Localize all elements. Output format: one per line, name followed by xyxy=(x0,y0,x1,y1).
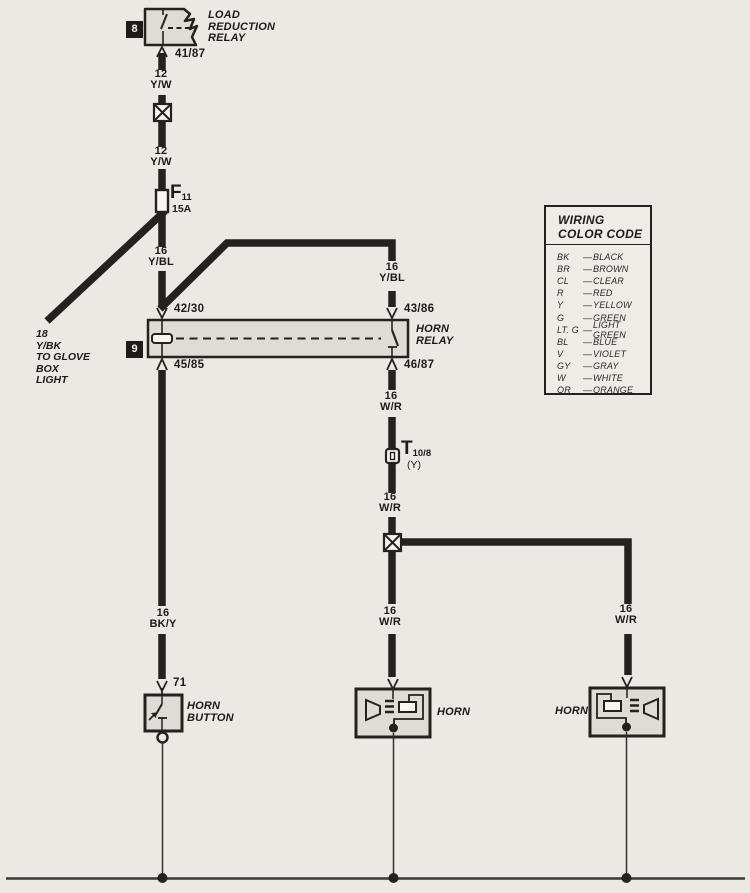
legend-row: OR—ORANGE xyxy=(557,384,649,396)
wire-label-16-bky: 16 BK/Y xyxy=(131,608,195,630)
component-tag-9: 9 xyxy=(126,341,143,358)
legend-row: GY—GRAY xyxy=(557,360,649,372)
terminal-46-87: 46/87 xyxy=(404,359,434,371)
terminal-71: 71 xyxy=(173,677,186,689)
legend-title: WIRING COLOR CODE xyxy=(558,214,642,241)
legend-row: LT. G—LIGHT GREEN xyxy=(557,324,649,336)
relay-86-branch-wire xyxy=(160,243,392,309)
horn-button-box xyxy=(145,695,182,743)
terminal-42-30: 42/30 xyxy=(174,303,204,315)
wire-label-16-ybl-right: 16 Y/BL xyxy=(360,262,424,284)
wire-label-16-wr-relay: 16 W/R xyxy=(359,391,423,413)
legend-row: BK—BLACK xyxy=(557,251,649,263)
legend-row: BR—BROWN xyxy=(557,263,649,275)
legend-row: CL—CLEAR xyxy=(557,275,649,287)
t-connector-note: (Y) xyxy=(407,460,421,471)
horn-left-name: HORN xyxy=(437,707,470,719)
wire-label-12-yw-upper: 12 Y/W xyxy=(129,69,193,91)
t-connector-symbol xyxy=(386,449,399,463)
terminal-43-86: 43/86 xyxy=(404,303,434,315)
legend-row: V—VIOLET xyxy=(557,348,649,360)
wire-label-12-yw-lower: 12 Y/W xyxy=(129,146,193,168)
wiring-diagram-page: 8 LOAD REDUCTION RELAY 41/87 12 Y/W 12 Y… xyxy=(0,0,750,893)
wiring-diagram-canvas xyxy=(0,0,750,893)
load-reduction-relay-box xyxy=(145,9,197,45)
ground-dot-right xyxy=(622,873,632,883)
legend-separator-line xyxy=(546,244,650,245)
ground-dot-middle xyxy=(389,873,399,883)
relay-87-to-horns-wire xyxy=(392,370,628,677)
horn-right-box xyxy=(590,688,664,736)
wire-label-16-wr-left-horn: 16 W/R xyxy=(358,606,422,628)
legend-entries: BK—BLACK BR—BROWN CL—CLEAR R—RED Y—YELLO… xyxy=(557,251,649,396)
splice-x-connector xyxy=(384,534,401,551)
legend-row: W—WHITE xyxy=(557,372,649,384)
horn-right-name: HORN xyxy=(555,706,588,718)
wire-label-16-wr-right-horn: 16 W/R xyxy=(594,604,658,626)
ground-dot-left xyxy=(158,873,168,883)
horn-button-name: HORN BUTTON xyxy=(187,701,234,724)
fuse-symbol xyxy=(156,190,168,212)
connector-x-upper xyxy=(154,104,171,121)
ground-rail xyxy=(6,732,745,883)
terminal-45-85: 45/85 xyxy=(174,359,204,371)
load-reduction-relay-name: LOAD REDUCTION RELAY xyxy=(208,10,275,45)
glove-box-branch-label: 18 Y/BK TO GLOVE BOX LIGHT xyxy=(36,329,90,387)
horn-relay-name: HORN RELAY xyxy=(416,324,453,347)
legend-row: R—RED xyxy=(557,287,649,299)
component-tag-8: 8 xyxy=(126,21,143,38)
wire-label-16-ybl-left: 16 Y/BL xyxy=(129,246,193,268)
wire-label-16-wr-mid: 16 W/R xyxy=(358,492,422,514)
wiring-color-code-legend: WIRING COLOR CODE BK—BLACK BR—BROWN CL—C… xyxy=(544,205,652,395)
fuse-rating: 15A xyxy=(172,204,191,215)
horn-relay-box xyxy=(148,320,408,357)
horn-left-box xyxy=(356,689,430,737)
terminal-41-87: 41/87 xyxy=(175,48,205,60)
legend-row: Y—YELLOW xyxy=(557,299,649,311)
